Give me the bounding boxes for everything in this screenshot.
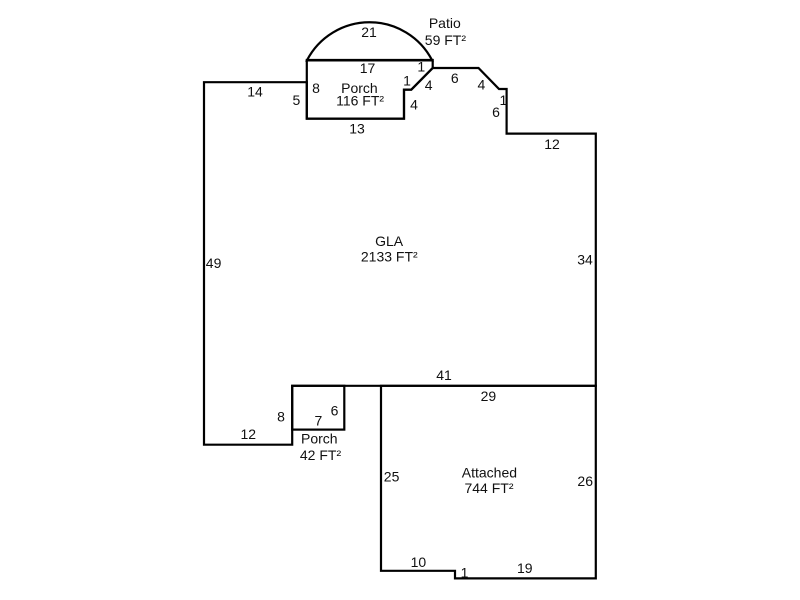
svg-text:2133 FT²: 2133 FT² bbox=[361, 249, 418, 265]
svg-text:1: 1 bbox=[403, 73, 411, 89]
svg-text:6: 6 bbox=[492, 104, 500, 120]
svg-text:Patio: Patio bbox=[429, 15, 461, 31]
svg-text:41: 41 bbox=[436, 367, 452, 383]
svg-text:6: 6 bbox=[331, 402, 339, 418]
svg-text:49: 49 bbox=[206, 255, 222, 271]
svg-text:29: 29 bbox=[481, 388, 497, 404]
svg-text:1: 1 bbox=[417, 59, 425, 75]
svg-text:Porch: Porch bbox=[301, 430, 338, 446]
svg-text:1: 1 bbox=[500, 92, 508, 108]
svg-text:25: 25 bbox=[384, 469, 400, 485]
svg-text:7: 7 bbox=[315, 412, 323, 428]
svg-text:GLA: GLA bbox=[375, 233, 404, 249]
svg-text:5: 5 bbox=[293, 92, 301, 108]
svg-text:14: 14 bbox=[247, 84, 263, 100]
svg-text:13: 13 bbox=[349, 121, 365, 137]
svg-text:1: 1 bbox=[461, 565, 469, 581]
svg-text:8: 8 bbox=[277, 408, 285, 424]
svg-text:4: 4 bbox=[425, 77, 433, 93]
svg-text:17: 17 bbox=[360, 60, 376, 76]
svg-text:6: 6 bbox=[451, 70, 459, 86]
svg-text:34: 34 bbox=[577, 252, 593, 268]
svg-text:744 FT²: 744 FT² bbox=[464, 480, 513, 496]
svg-text:59 FT²: 59 FT² bbox=[425, 32, 467, 48]
svg-text:4: 4 bbox=[410, 97, 418, 113]
svg-text:42 FT²: 42 FT² bbox=[300, 447, 342, 463]
svg-text:26: 26 bbox=[577, 473, 593, 489]
svg-text:116 FT²: 116 FT² bbox=[336, 93, 384, 109]
svg-text:12: 12 bbox=[544, 136, 560, 152]
svg-text:4: 4 bbox=[478, 77, 486, 93]
svg-text:10: 10 bbox=[411, 554, 427, 570]
svg-text:12: 12 bbox=[241, 426, 257, 442]
svg-text:21: 21 bbox=[361, 24, 377, 40]
svg-text:8: 8 bbox=[312, 80, 320, 96]
svg-text:19: 19 bbox=[517, 560, 533, 576]
svg-text:Attached: Attached bbox=[462, 465, 517, 481]
